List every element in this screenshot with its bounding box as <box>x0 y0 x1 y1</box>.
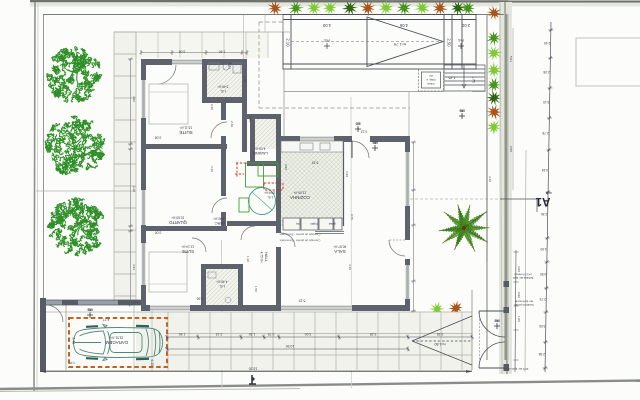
svg-text:GARAGEM: GARAGEM <box>105 340 128 345</box>
svg-text:3.05: 3.05 <box>539 324 545 328</box>
svg-text:4.10: 4.10 <box>348 264 352 270</box>
svg-text:4.10: 4.10 <box>488 176 492 182</box>
svg-text:3.00: 3.00 <box>155 231 162 235</box>
svg-text:2.36: 2.36 <box>541 212 547 216</box>
svg-text:1.75: 1.75 <box>472 76 476 83</box>
svg-text:3.00: 3.00 <box>305 332 312 336</box>
svg-text:SUITE: SUITE <box>182 249 195 254</box>
svg-text:QUARTO: QUARTO <box>168 220 187 225</box>
svg-text:1.40: 1.40 <box>219 50 226 54</box>
svg-text:3.23: 3.23 <box>132 264 136 270</box>
svg-text:12.14 m²: 12.14 m² <box>182 245 195 249</box>
svg-text:Camada de janela - Essentials: Camada de janela - Essentials <box>279 239 320 243</box>
svg-text:2.36: 2.36 <box>197 297 204 301</box>
svg-text:I.S.: I.S. <box>219 284 225 289</box>
svg-text:HALL: HALL <box>264 252 269 263</box>
svg-text:4.46 m²: 4.46 m² <box>217 280 228 284</box>
svg-text:1.25: 1.25 <box>449 76 456 80</box>
svg-text:MB: MB <box>372 141 378 145</box>
svg-text:PIS: PIS <box>458 38 464 42</box>
svg-text:10.60 m²: 10.60 m² <box>172 216 185 220</box>
svg-text:4.75 m²: 4.75 m² <box>260 252 264 263</box>
svg-text:2.10: 2.10 <box>286 38 291 47</box>
svg-text:10.90: 10.90 <box>286 344 295 348</box>
svg-text:3.08: 3.08 <box>155 136 162 140</box>
svg-text:3.00: 3.00 <box>517 266 521 272</box>
svg-text:2.49: 2.49 <box>544 41 550 45</box>
svg-text:fogão: fogão <box>310 222 317 226</box>
svg-text:4.62: 4.62 <box>132 96 136 102</box>
svg-text:2.48: 2.48 <box>71 338 75 345</box>
svg-text:0.75: 0.75 <box>350 214 354 220</box>
svg-text:18.20: 18.20 <box>249 367 258 371</box>
svg-text:fachada alv. tijolo: fachada alv. tijolo <box>512 276 533 280</box>
svg-text:1.00: 1.00 <box>517 316 521 322</box>
svg-text:16.11 m²: 16.11 m² <box>180 126 192 130</box>
svg-text:13.09 m²: 13.09 m² <box>294 191 307 195</box>
svg-text:PIS: PIS <box>324 38 330 42</box>
svg-text:SUITE: SUITE <box>179 130 193 135</box>
svg-text:2.50: 2.50 <box>509 146 513 152</box>
svg-text:MB: MB <box>87 308 93 312</box>
svg-text:40.97 m²: 40.97 m² <box>334 245 347 249</box>
svg-text:4.00: 4.00 <box>322 23 331 28</box>
svg-text:h=1.80 reboco: h=1.80 reboco <box>514 273 532 277</box>
svg-text:3.28: 3.28 <box>370 332 377 336</box>
svg-text:pia: pia <box>296 222 300 226</box>
svg-text:wc: wc <box>429 74 433 78</box>
svg-text:2.78: 2.78 <box>542 131 548 135</box>
svg-text:1.50: 1.50 <box>254 286 258 292</box>
svg-text:3.08: 3.08 <box>179 50 186 54</box>
svg-text:2.40: 2.40 <box>210 104 214 110</box>
svg-text:2.49: 2.49 <box>230 121 234 127</box>
svg-text:1.40: 1.40 <box>243 76 247 82</box>
svg-text:COZINHA: COZINHA <box>290 195 310 200</box>
svg-text:7.42 m²: 7.42 m² <box>214 217 225 221</box>
svg-text:h=1.80: h=1.80 <box>434 342 445 346</box>
svg-text:3.04 m²: 3.04 m² <box>265 191 276 195</box>
svg-text:5.19: 5.19 <box>299 299 306 303</box>
svg-text:MB: MB <box>494 319 500 323</box>
svg-text:0.90: 0.90 <box>540 272 546 276</box>
svg-text:3.00: 3.00 <box>540 247 546 251</box>
svg-text:2.13: 2.13 <box>216 332 223 336</box>
svg-text:0.90: 0.90 <box>284 164 288 170</box>
svg-text:5.29: 5.29 <box>312 161 319 165</box>
svg-text:4.27: 4.27 <box>103 318 110 322</box>
svg-text:6.25: 6.25 <box>150 360 154 367</box>
svg-text:1.30: 1.30 <box>246 256 250 262</box>
svg-text:CIRC.: CIRC. <box>214 221 225 226</box>
svg-text:2.58: 2.58 <box>538 352 544 356</box>
svg-text:MB: MB <box>459 109 465 113</box>
svg-text:1.50: 1.50 <box>179 332 186 336</box>
svg-text:gelad.: gelad. <box>328 222 336 226</box>
svg-text:0.25: 0.25 <box>69 361 75 365</box>
svg-text:3.10: 3.10 <box>210 166 214 172</box>
svg-text:LAVAND.: LAVAND. <box>252 151 268 155</box>
svg-text:3.12: 3.12 <box>361 130 368 134</box>
svg-text:1.30: 1.30 <box>249 332 256 336</box>
svg-text:0.90: 0.90 <box>517 292 521 298</box>
svg-text:3.28: 3.28 <box>437 332 444 336</box>
svg-text:5.10: 5.10 <box>543 100 549 104</box>
svg-text:Vestíbulo portão: Vestíbulo portão <box>514 303 534 307</box>
svg-text:0.45: 0.45 <box>248 116 252 122</box>
svg-text:I.S.: I.S. <box>220 89 226 94</box>
svg-text:4.09 m²: 4.09 m² <box>255 147 266 151</box>
svg-text:4.18: 4.18 <box>542 168 548 172</box>
svg-text:2.50: 2.50 <box>447 38 452 47</box>
svg-text:23.51 m²: 23.51 m² <box>111 336 124 340</box>
svg-text:SALA: SALA <box>333 249 346 254</box>
svg-text:5.49 m²: 5.49 m² <box>218 85 229 89</box>
svg-text:2.00: 2.00 <box>461 23 470 28</box>
svg-text:5.01: 5.01 <box>509 56 513 62</box>
svg-text:BD: BD <box>355 122 360 126</box>
svg-text:2.75: 2.75 <box>539 297 545 301</box>
svg-text:1.03: 1.03 <box>228 63 232 69</box>
svg-text:3.10: 3.10 <box>132 186 136 192</box>
svg-text:2.08: 2.08 <box>543 70 549 74</box>
svg-text:4.06: 4.06 <box>399 23 408 28</box>
svg-text:alv. tijolo social: alv. tijolo social <box>515 300 533 304</box>
svg-text:I.S.: I.S. <box>267 195 273 199</box>
svg-text:h=1.75: h=1.75 <box>393 42 406 47</box>
svg-text:0.75: 0.75 <box>268 332 275 336</box>
svg-text:Camada de janela - Essentials: Camada de janela - Essentials <box>279 233 320 237</box>
svg-text:3.29: 3.29 <box>345 171 349 177</box>
svg-text:20.5 alv. tijolo divisa: 20.5 alv. tijolo divisa <box>503 367 528 371</box>
